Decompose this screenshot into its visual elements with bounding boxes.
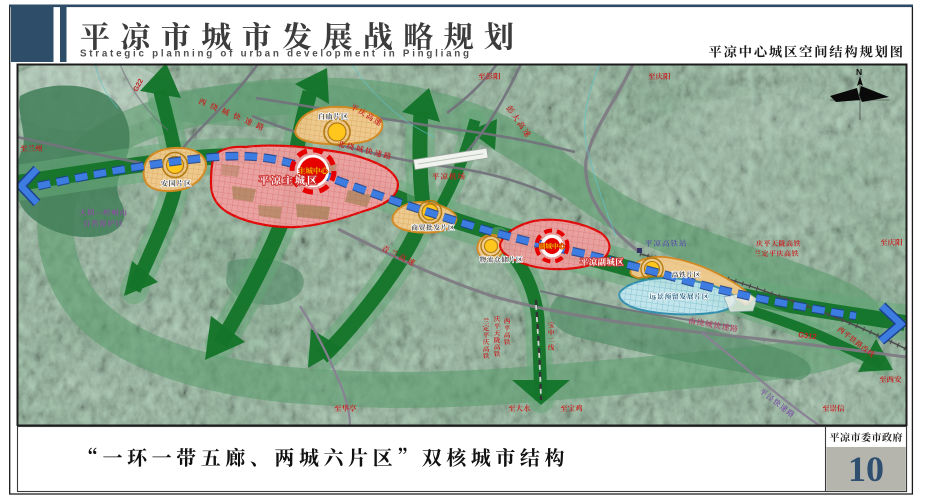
svg-text:Strategic planning of urban de: Strategic planning of urban development … (80, 48, 472, 59)
svg-text:10: 10 (848, 449, 884, 489)
svg-text:N: N (856, 67, 862, 77)
